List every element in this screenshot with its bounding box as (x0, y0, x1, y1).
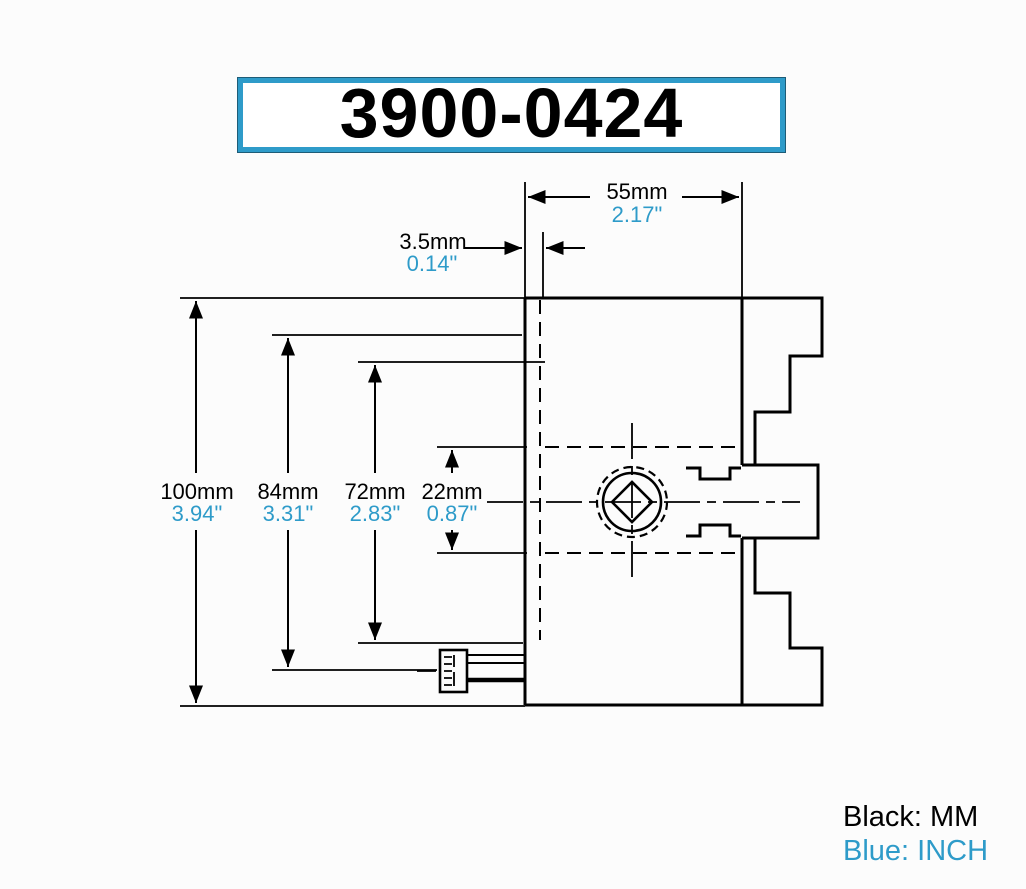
legend-blue-inch: Blue: INCH (843, 834, 988, 868)
dim-3p5-inch-label: 0.14" (407, 251, 458, 276)
dim-72-inch-label: 2.83" (350, 501, 401, 526)
thread-ticks (444, 657, 452, 685)
hidden-lines (540, 300, 740, 640)
dim-100-inch-label: 3.94" (172, 501, 223, 526)
dimension-22mm: 22mm 0.87" (421, 450, 482, 550)
technical-drawing: 55mm 2.17" 3.5mm 0.14" 100mm 3.94" 84mm … (0, 0, 1026, 889)
dimension-55mm: 55mm 2.17" (528, 179, 739, 227)
screw-shaft-lines (467, 655, 525, 663)
extension-lines (180, 182, 742, 706)
units-legend: Black: MM Blue: INCH (843, 800, 988, 868)
bottom-jaw (742, 538, 822, 705)
dimension-84mm: 84mm 3.31" (257, 338, 318, 667)
dimension-72mm: 72mm 2.83" (344, 365, 405, 640)
dim-22-inch-label: 0.87" (427, 501, 478, 526)
dimension-3p5mm: 3.5mm 0.14" (399, 229, 585, 276)
top-jaw (742, 298, 822, 465)
dim-55-mm-label: 55mm (606, 179, 667, 204)
dimension-100mm: 100mm 3.94" (160, 301, 233, 703)
mounting-screw (417, 650, 525, 692)
legend-black-mm: Black: MM (843, 800, 988, 834)
dim-55-inch-label: 2.17" (612, 202, 663, 227)
drawing-canvas: 3900-0424 (0, 0, 1026, 889)
dim-84-inch-label: 3.31" (263, 501, 314, 526)
